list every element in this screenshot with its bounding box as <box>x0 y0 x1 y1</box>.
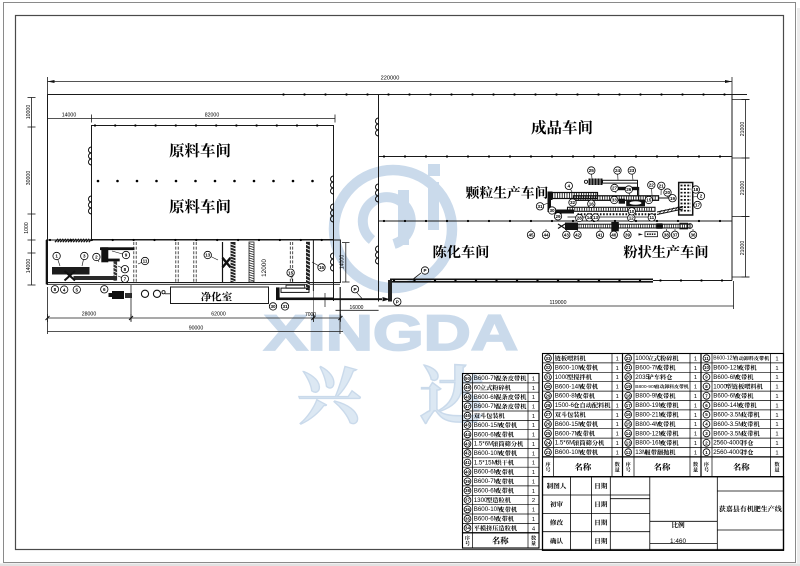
svg-text:25: 25 <box>546 431 551 436</box>
svg-text:20: 20 <box>626 375 631 380</box>
svg-text:14000: 14000 <box>62 113 77 119</box>
svg-text:119000: 119000 <box>550 300 567 306</box>
svg-text:2035: 2035 <box>635 374 649 381</box>
svg-text:1000: 1000 <box>713 383 727 390</box>
svg-text:1: 1 <box>532 386 535 392</box>
svg-text:1000: 1000 <box>24 222 30 234</box>
svg-text:18: 18 <box>693 187 699 192</box>
svg-text:1: 1 <box>532 376 535 382</box>
svg-text:21000: 21000 <box>740 241 746 256</box>
svg-text:43: 43 <box>465 441 470 446</box>
svg-text:B600-12M: B600-12M <box>713 365 742 372</box>
svg-text:38: 38 <box>465 488 470 493</box>
svg-text:1: 1 <box>694 413 697 419</box>
svg-text:1: 1 <box>532 423 535 429</box>
svg-text:1:460: 1:460 <box>670 538 686 545</box>
svg-text:B600-7M: B600-7M <box>474 478 499 485</box>
svg-text:33: 33 <box>612 198 618 203</box>
svg-text:40: 40 <box>611 233 617 238</box>
svg-text:30: 30 <box>270 304 276 309</box>
svg-text:1: 1 <box>616 432 619 438</box>
svg-text:21000: 21000 <box>740 122 746 137</box>
svg-text:1: 1 <box>694 356 697 362</box>
svg-text:42: 42 <box>465 451 470 456</box>
svg-text:B800-9M: B800-9M <box>635 393 660 400</box>
svg-text:11: 11 <box>143 259 148 264</box>
svg-text:14: 14 <box>626 431 631 436</box>
svg-text:39: 39 <box>465 479 470 484</box>
svg-text:B600-7M: B600-7M <box>474 403 499 410</box>
svg-text:1: 1 <box>532 470 535 476</box>
svg-text:1: 1 <box>694 450 697 456</box>
svg-text:1: 1 <box>532 461 535 467</box>
svg-text:32: 32 <box>570 200 576 205</box>
svg-text:2560-4000: 2560-4000 <box>713 449 743 456</box>
svg-text:16: 16 <box>589 202 595 207</box>
svg-text:31: 31 <box>537 204 543 209</box>
svg-text:9: 9 <box>125 253 128 258</box>
svg-text:1: 1 <box>532 517 535 523</box>
svg-text:B800-16M: B800-16M <box>635 440 664 447</box>
svg-text:B600-7M: B600-7M <box>555 430 580 437</box>
svg-text:18: 18 <box>626 393 631 398</box>
svg-text:B600-7M: B600-7M <box>474 375 499 382</box>
svg-text:B600-10M: B600-10M <box>555 449 584 456</box>
svg-text:1: 1 <box>694 366 697 372</box>
svg-text:XINGDA: XINGDA <box>264 305 518 361</box>
svg-text:45: 45 <box>528 233 534 238</box>
svg-text:26: 26 <box>626 187 632 192</box>
svg-text:32: 32 <box>546 365 551 370</box>
svg-text:1: 1 <box>616 441 619 447</box>
svg-text:P: P <box>396 299 399 304</box>
svg-text:4: 4 <box>63 287 66 292</box>
svg-text:39: 39 <box>625 233 631 238</box>
svg-text:B600-10M: B600-10M <box>474 506 503 513</box>
svg-text:44: 44 <box>543 233 549 238</box>
svg-text:2: 2 <box>95 255 98 260</box>
svg-text:22: 22 <box>649 183 655 188</box>
svg-text:60: 60 <box>474 384 481 391</box>
svg-text:2: 2 <box>532 498 535 504</box>
svg-text:1: 1 <box>694 432 697 438</box>
svg-text:14000: 14000 <box>26 259 32 274</box>
svg-text:1: 1 <box>775 403 778 409</box>
svg-text:7: 7 <box>124 277 127 282</box>
svg-text:1: 1 <box>694 403 697 409</box>
svg-text:5: 5 <box>76 287 79 292</box>
svg-text:B600-14M: B600-14M <box>555 383 584 390</box>
svg-text:1: 1 <box>775 413 778 419</box>
svg-text:1: 1 <box>616 422 619 428</box>
svg-text:4: 4 <box>568 184 571 189</box>
svg-text:1: 1 <box>694 394 697 400</box>
svg-text:37: 37 <box>465 498 470 503</box>
svg-text:1: 1 <box>616 366 619 372</box>
svg-text:1: 1 <box>532 508 535 514</box>
svg-text:46: 46 <box>465 413 470 418</box>
svg-text:19: 19 <box>626 384 631 389</box>
svg-text:17: 17 <box>626 403 631 408</box>
svg-text:82000: 82000 <box>205 113 220 119</box>
svg-text:3: 3 <box>83 254 86 259</box>
svg-text:B600-12M: B600-12M <box>713 356 737 362</box>
svg-text:1: 1 <box>775 394 778 400</box>
svg-text:38: 38 <box>664 233 670 238</box>
svg-text:29: 29 <box>555 214 561 219</box>
svg-text:B600-3.5M: B600-3.5M <box>713 430 743 437</box>
svg-text:31: 31 <box>282 304 288 309</box>
svg-text:1.5*6M: 1.5*6M <box>474 441 494 448</box>
svg-text:7000: 7000 <box>305 312 316 318</box>
svg-text:13: 13 <box>593 215 599 220</box>
svg-text:B800-4M: B800-4M <box>635 421 660 428</box>
svg-text:23: 23 <box>629 168 635 173</box>
svg-text:43: 43 <box>564 233 570 238</box>
svg-text:22: 22 <box>626 356 631 361</box>
svg-text:1: 1 <box>532 451 535 457</box>
svg-text:B600-7M: B600-7M <box>635 365 660 372</box>
svg-text:1.5*15M: 1.5*15M <box>474 459 497 466</box>
svg-text:36: 36 <box>465 507 470 512</box>
svg-text:1000: 1000 <box>635 355 649 362</box>
svg-text:37: 37 <box>672 233 678 238</box>
svg-text:B600-10M: B600-10M <box>555 365 584 372</box>
svg-text:45: 45 <box>465 423 470 428</box>
svg-text:B600-6M: B600-6M <box>474 488 499 495</box>
svg-text:16: 16 <box>626 412 631 417</box>
svg-text:8: 8 <box>54 287 57 292</box>
svg-text:41: 41 <box>597 233 603 238</box>
svg-text:10: 10 <box>629 209 635 214</box>
svg-text:2: 2 <box>700 194 703 199</box>
svg-text:16000: 16000 <box>350 305 364 311</box>
svg-text:47: 47 <box>465 404 470 409</box>
svg-text:1: 1 <box>616 450 619 456</box>
svg-text:14000: 14000 <box>340 255 346 270</box>
svg-text:1: 1 <box>775 385 778 391</box>
svg-text:49: 49 <box>465 385 470 390</box>
svg-text:10000: 10000 <box>26 105 32 120</box>
svg-text:P: P <box>353 287 356 292</box>
svg-text:11: 11 <box>649 215 654 220</box>
svg-text:1: 1 <box>532 442 535 448</box>
svg-text:28: 28 <box>577 216 583 221</box>
svg-text:1: 1 <box>775 441 778 447</box>
svg-text:12: 12 <box>626 450 631 455</box>
svg-text:21: 21 <box>626 365 631 370</box>
svg-text:1: 1 <box>532 414 535 420</box>
svg-text:21000: 21000 <box>740 181 746 196</box>
svg-text:26: 26 <box>546 422 551 427</box>
svg-text:B800-19M: B800-19M <box>635 402 664 409</box>
svg-text:11: 11 <box>704 356 709 361</box>
svg-text:24: 24 <box>546 440 551 445</box>
svg-text:1: 1 <box>55 254 58 259</box>
svg-text:1: 1 <box>775 375 778 381</box>
svg-text:62000: 62000 <box>211 312 226 318</box>
svg-text:27: 27 <box>612 186 618 191</box>
svg-text:16: 16 <box>319 265 325 270</box>
svg-text:B600-15M: B600-15M <box>555 421 584 428</box>
svg-text:1: 1 <box>532 433 535 439</box>
svg-text:B600-6M: B600-6M <box>474 469 499 476</box>
svg-text:1: 1 <box>532 489 535 495</box>
svg-text:1: 1 <box>775 450 778 456</box>
svg-text:21: 21 <box>659 184 665 189</box>
svg-text:24: 24 <box>615 168 621 173</box>
svg-text:B600-3.5M: B600-3.5M <box>713 412 743 419</box>
svg-text:1: 1 <box>775 422 778 428</box>
svg-text:1: 1 <box>775 366 778 372</box>
svg-text:1: 1 <box>775 356 778 362</box>
svg-text:1: 1 <box>616 413 619 419</box>
svg-text:P: P <box>423 268 426 273</box>
svg-text:220000: 220000 <box>381 76 400 82</box>
svg-text:B800-21M: B800-21M <box>635 412 664 419</box>
svg-text:15: 15 <box>646 198 652 203</box>
svg-text:1: 1 <box>694 385 697 391</box>
svg-text:1: 1 <box>616 385 619 391</box>
svg-text:1500-6: 1500-6 <box>555 402 575 409</box>
svg-text:1: 1 <box>532 405 535 411</box>
svg-text:35: 35 <box>465 516 470 521</box>
svg-text:1: 1 <box>616 375 619 381</box>
svg-text:12: 12 <box>629 216 635 221</box>
svg-text:23: 23 <box>546 450 551 455</box>
svg-text:12000: 12000 <box>261 259 268 277</box>
svg-text:29: 29 <box>546 393 551 398</box>
svg-text:17: 17 <box>695 203 701 208</box>
svg-text:8: 8 <box>124 267 127 272</box>
svg-text:B600-6M: B600-6M <box>474 431 499 438</box>
svg-text:44: 44 <box>465 432 470 437</box>
svg-text:1.5*6M: 1.5*6M <box>555 440 575 447</box>
svg-text:B600-14M: B600-14M <box>713 402 742 409</box>
svg-text:B600-8M: B600-8M <box>555 393 580 400</box>
svg-text:34: 34 <box>465 526 470 531</box>
svg-text:1: 1 <box>694 422 697 428</box>
svg-text:B800-90M: B800-90M <box>635 384 658 390</box>
svg-text:1: 1 <box>616 356 619 362</box>
svg-text:41: 41 <box>465 460 470 465</box>
svg-text:2560-4000: 2560-4000 <box>713 440 743 447</box>
svg-text:30: 30 <box>549 208 555 213</box>
svg-text:B600-6M: B600-6M <box>474 516 499 523</box>
svg-text:33: 33 <box>546 356 551 361</box>
svg-text:40: 40 <box>465 470 470 475</box>
svg-text:15: 15 <box>288 270 294 275</box>
svg-text:1: 1 <box>616 403 619 409</box>
svg-text:1000: 1000 <box>555 374 569 381</box>
svg-text:1: 1 <box>694 375 697 381</box>
svg-text:1: 1 <box>616 394 619 400</box>
svg-text:42: 42 <box>575 233 581 238</box>
svg-text:10: 10 <box>704 365 709 370</box>
svg-text:19: 19 <box>670 196 676 201</box>
svg-text:B600-6M: B600-6M <box>713 393 738 400</box>
svg-text:B800-12M: B800-12M <box>635 430 664 437</box>
svg-text:6: 6 <box>103 287 106 292</box>
svg-text:30000: 30000 <box>26 171 32 186</box>
svg-text:1: 1 <box>532 395 535 401</box>
svg-text:B600-10M: B600-10M <box>474 450 503 457</box>
svg-text:B600-3.5M: B600-3.5M <box>713 421 743 428</box>
svg-text:1: 1 <box>775 432 778 438</box>
svg-text:B600-6M: B600-6M <box>713 374 738 381</box>
svg-text:B600-15M: B600-15M <box>474 422 503 429</box>
svg-text:28000: 28000 <box>82 312 97 318</box>
svg-text:13: 13 <box>626 440 631 445</box>
svg-text:48: 48 <box>465 395 470 400</box>
svg-text:50: 50 <box>465 376 470 381</box>
svg-text:30: 30 <box>546 384 551 389</box>
svg-text:1: 1 <box>694 441 697 447</box>
svg-text:28: 28 <box>546 403 551 408</box>
svg-text:1300: 1300 <box>474 497 488 504</box>
svg-text:15: 15 <box>626 422 631 427</box>
svg-text:36: 36 <box>690 233 696 238</box>
svg-text:25: 25 <box>589 168 595 173</box>
svg-text:90000: 90000 <box>189 326 204 332</box>
svg-text:20: 20 <box>665 190 671 195</box>
svg-text:27: 27 <box>546 412 551 417</box>
svg-text:B600-6M: B600-6M <box>474 394 499 401</box>
svg-text:1: 1 <box>532 480 535 486</box>
svg-text:31: 31 <box>546 375 551 380</box>
svg-text:13: 13 <box>205 253 211 258</box>
